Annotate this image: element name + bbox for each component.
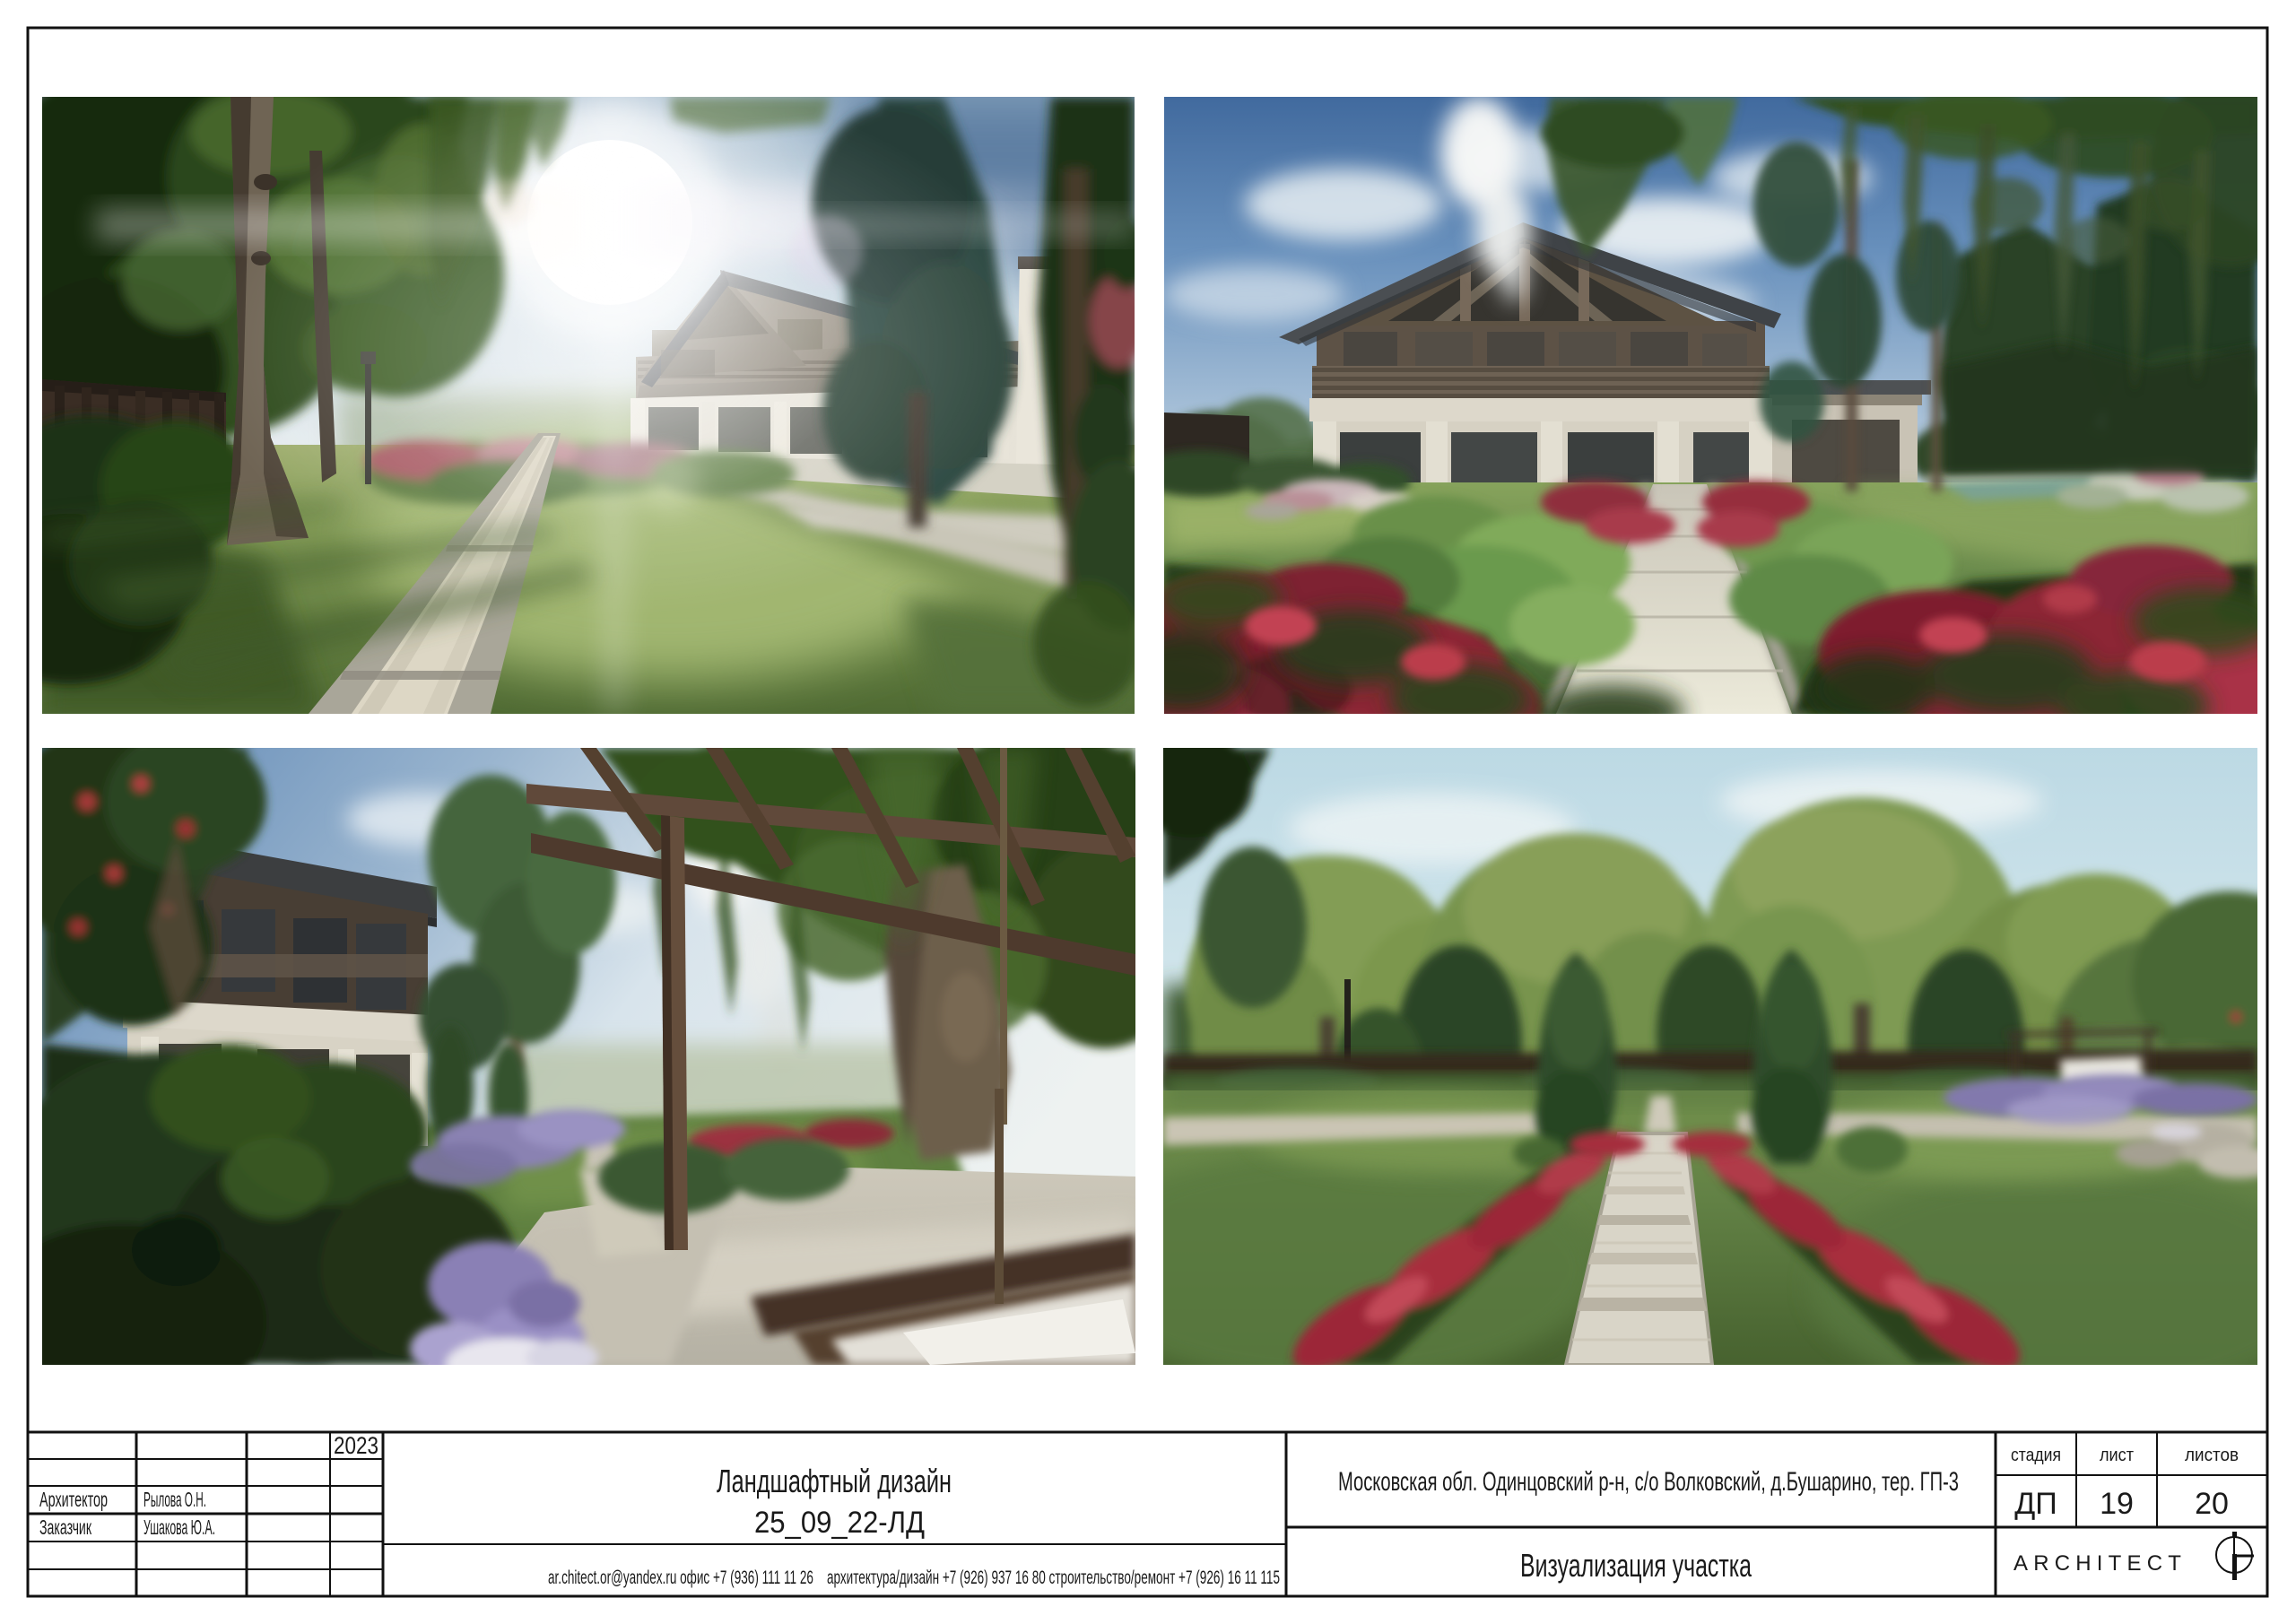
svg-text:ARCHITECT: ARCHITECT [2013, 1551, 2187, 1576]
svg-text:Ландшафтный дизайн: Ландшафтный дизайн [717, 1463, 952, 1499]
svg-text:20: 20 [2195, 1487, 2229, 1521]
svg-text:лист: лист [2100, 1446, 2134, 1465]
svg-text:Архитектор: Архитектор [39, 1488, 108, 1511]
svg-text:Ушакова Ю.А.: Ушакова Ю.А. [143, 1515, 215, 1539]
svg-text:2023: 2023 [334, 1432, 378, 1459]
svg-text:Визуализация участка: Визуализация участка [1520, 1547, 1752, 1584]
svg-text:Заказчик: Заказчик [39, 1515, 92, 1539]
svg-text:25_09_22-ЛД: 25_09_22-ЛД [754, 1506, 925, 1540]
svg-text:ar.chitect.or@yandex.ru офис +: ar.chitect.or@yandex.ru офис +7 (936) 11… [548, 1568, 1280, 1588]
svg-text:листов: листов [2185, 1446, 2239, 1465]
svg-text:Московская обл. Одинцовский р-: Московская обл. Одинцовский р-н, с/о Вол… [1338, 1467, 1959, 1497]
svg-text:ДП: ДП [2014, 1487, 2057, 1521]
svg-text:стадия: стадия [2011, 1446, 2061, 1465]
svg-text:19: 19 [2100, 1487, 2134, 1521]
svg-text:Рылова О.Н.: Рылова О.Н. [143, 1488, 206, 1511]
